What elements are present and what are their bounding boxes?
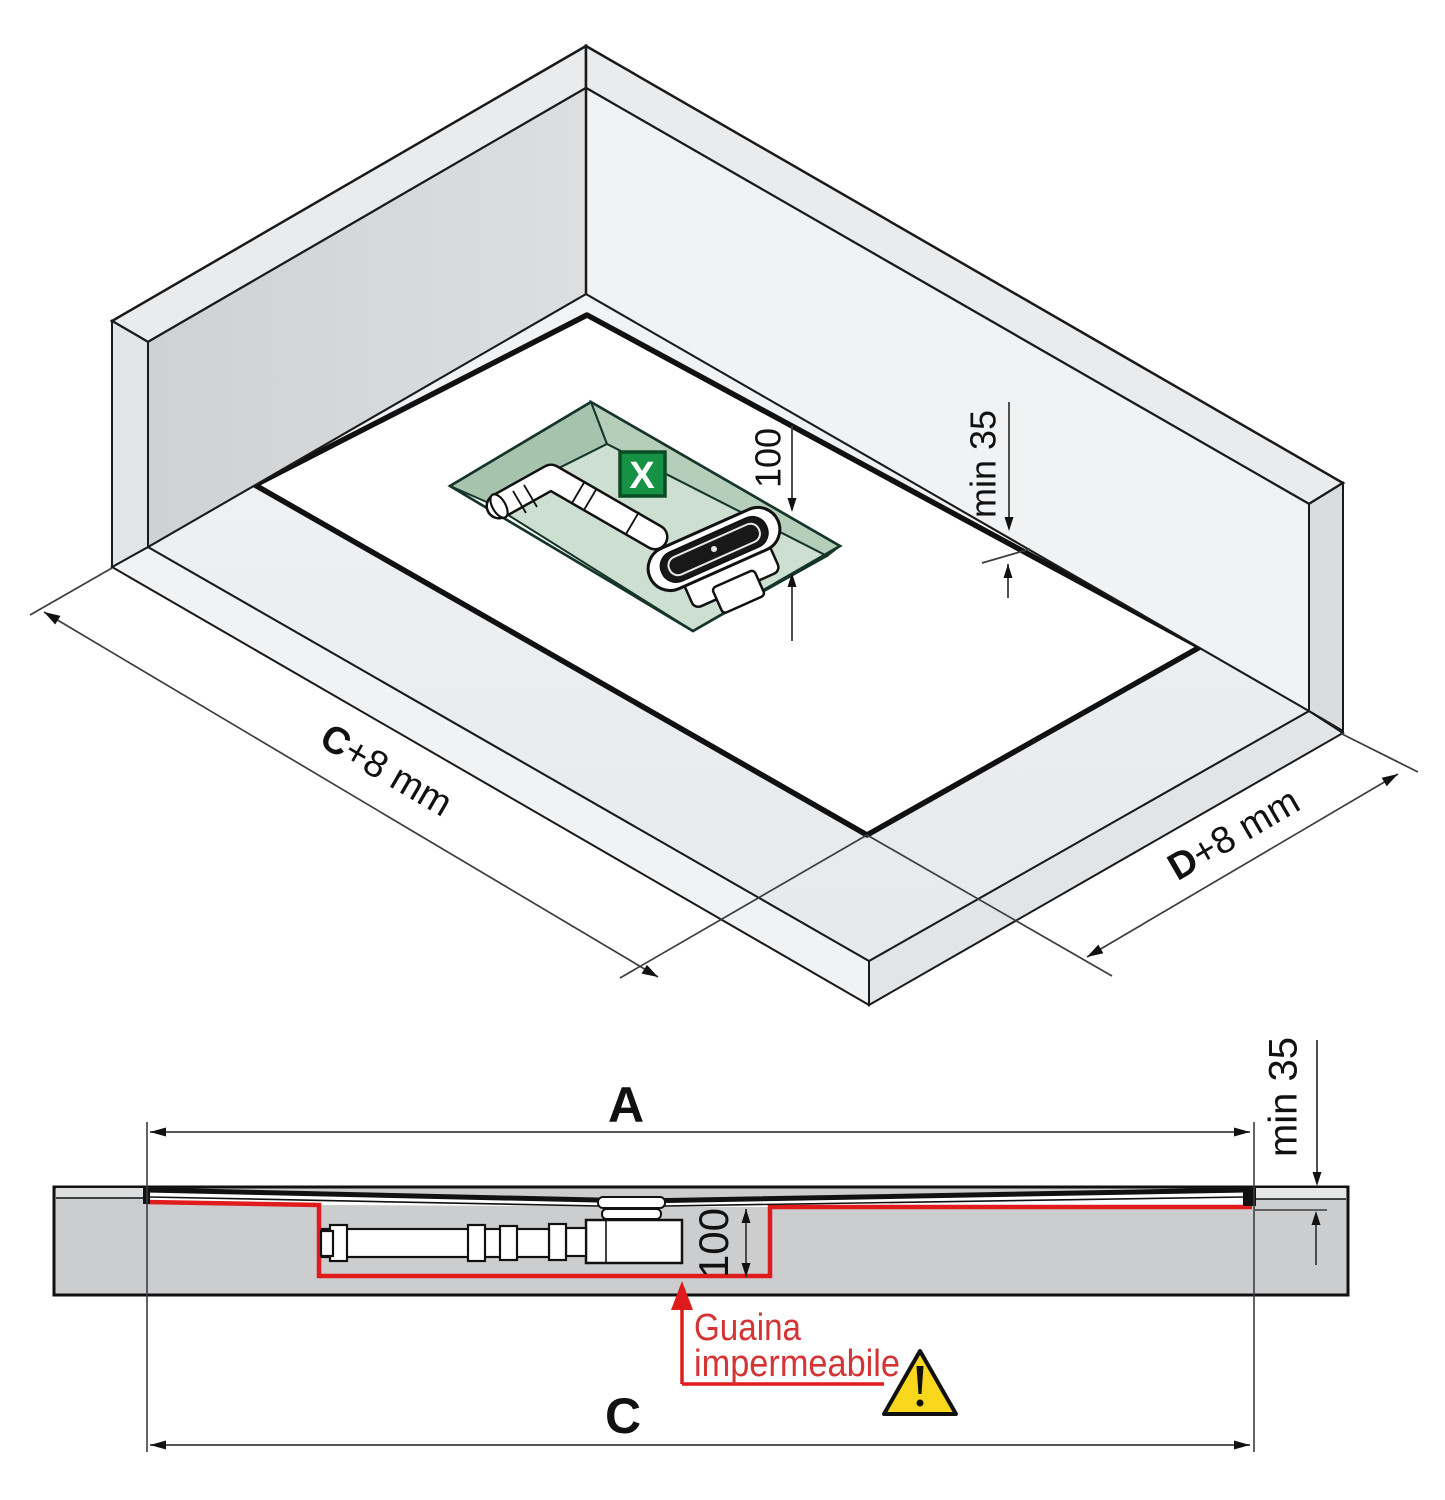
svg-text:min 35: min 35 [963, 410, 1004, 518]
svg-text:C: C [605, 1388, 641, 1444]
svg-text:min 35: min 35 [1262, 1037, 1306, 1157]
svg-text:100: 100 [690, 1208, 737, 1278]
svg-text:100: 100 [748, 428, 789, 488]
svg-text:A: A [608, 1077, 644, 1133]
svg-text:impermeabile: impermeabile [694, 1343, 900, 1385]
svg-text:X: X [629, 455, 655, 497]
